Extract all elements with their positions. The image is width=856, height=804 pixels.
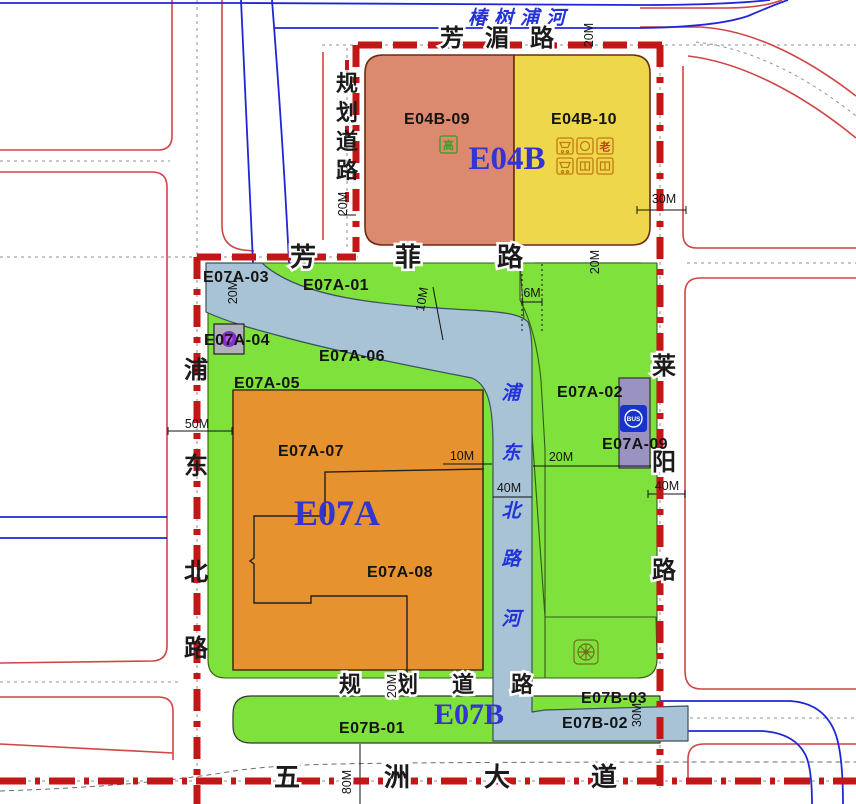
chunshupu-river-line-north (0, 0, 770, 5)
river-char-mid-2: 东 (501, 442, 523, 464)
road-fangmei-char-1: 芳 (440, 25, 464, 52)
creek-into-site-east (272, 0, 291, 288)
road-pudongbei-char-3: 北 (184, 559, 208, 586)
road-laiyang-char-1: 莱 (652, 353, 676, 380)
dim-20m-fangfei: 20M (588, 250, 602, 274)
label-e07b-01: E07B-01 (339, 720, 405, 737)
road-guihua-west-char-4: 路 (336, 158, 359, 183)
road-fangfei-char-3: 路 (497, 242, 524, 272)
left-road-west-edge (0, 172, 167, 663)
road-guihua-west-char-1: 规 (336, 71, 358, 96)
river-char-mid-1: 浦 (501, 382, 523, 404)
label-e04b-09: E04B-09 (404, 111, 470, 128)
road-wuzhou-char-3: 大 (484, 762, 510, 792)
label-e07a-02: E07A-02 (557, 384, 623, 401)
dim-20m-fangmei: 20M (582, 23, 596, 47)
road-guihua-west-char-2: 划 (336, 100, 358, 125)
dim-40m-river: 40M (497, 481, 521, 495)
bottom-left-road-south-edge (0, 697, 173, 760)
label-e07a-06: E07A-06 (319, 348, 385, 365)
bus-station-icon: BUS (620, 405, 647, 432)
dim-50m: 50M (185, 417, 209, 431)
zone-title-e07b: E07B (434, 698, 504, 731)
label-e07a-09: E07A-09 (602, 436, 668, 453)
dim-40m-laiyang: 40M (655, 479, 679, 493)
zone-title-e07a: E07A (294, 493, 380, 533)
road-laiyang-char-2: 阳 (652, 449, 676, 476)
bus-icon-label: BUS (627, 416, 641, 423)
road-guihua-west-char-3: 道 (336, 129, 358, 154)
road-fangmei-char-2: 湄 (485, 25, 509, 52)
outlet-river-line-south (659, 731, 812, 804)
dim-80m-wuzhou: 80M (340, 770, 354, 794)
road-pudongbei-char-1: 浦 (184, 356, 208, 384)
dim-30m-top: 30M (652, 192, 676, 206)
road-fangfei-char-1: 芳 (290, 242, 316, 272)
ramp-inner-arc (640, 27, 856, 96)
left-road-east-edge (222, 0, 254, 251)
zone-title-e04b: E04B (468, 141, 545, 177)
river-char-mid-4: 路 (501, 548, 522, 570)
bottom-left-ramp-line (0, 744, 173, 753)
label-e07a-07: E07A-07 (278, 443, 344, 460)
road-wuzhou-char-2: 洲 (384, 762, 410, 792)
label-e04b-10: E04B-10 (551, 111, 617, 128)
label-e07a-01: E07A-01 (303, 277, 369, 294)
road-guihua-south-char-1: 规 (339, 672, 361, 697)
green-frame-right (545, 617, 657, 678)
planning-map: BUS 高 老 (0, 0, 856, 804)
creek-into-site-west (241, 0, 253, 263)
dim-20m-beige: 20M (549, 450, 573, 464)
wuzhou-north-edge (0, 762, 856, 791)
dim-20m-guihua-south: 20M (385, 674, 399, 698)
highrise-icon-glyph: 高 (443, 138, 454, 152)
road-guihua-south-char-3: 道 (452, 672, 474, 697)
left-road-west-edge-north (0, 0, 172, 150)
dim-6m: 6M (523, 286, 540, 300)
road-laiyang-char-3: 路 (652, 556, 677, 584)
road-fangmei-char-3: 路 (530, 24, 555, 52)
laiyang-east-edge-north (683, 66, 856, 248)
river-name-chunshupu: 椿树浦河 (468, 7, 572, 29)
road-wuzhou-char-4: 道 (591, 762, 617, 792)
dim-10m: 10M (450, 449, 474, 463)
dim-30m-e07b: 30M (630, 703, 644, 727)
road-guihua-south-char-4: 路 (511, 672, 534, 697)
dim-20m-guihua-west: 20M (336, 192, 350, 216)
road-pudongbei-char-4: 路 (184, 634, 209, 662)
label-e07a-04: E07A-04 (204, 332, 270, 349)
label-e07a-08: E07A-08 (367, 564, 433, 581)
road-wuzhou-char-1: 五 (274, 762, 300, 792)
road-pudongbei-char-2: 东 (184, 452, 208, 480)
road-fangfei-char-2: 菲 (395, 242, 421, 272)
laiyang-east-edge-south (685, 278, 856, 689)
elderly-icon-glyph: 老 (599, 140, 611, 154)
label-e07b-02: E07B-02 (562, 715, 628, 732)
road-guihua-south-char-2: 划 (396, 672, 418, 697)
label-e07a-05: E07A-05 (234, 375, 300, 392)
river-char-mid-3: 北 (501, 501, 523, 522)
dim-20m-e07a03: 20M (226, 280, 240, 304)
